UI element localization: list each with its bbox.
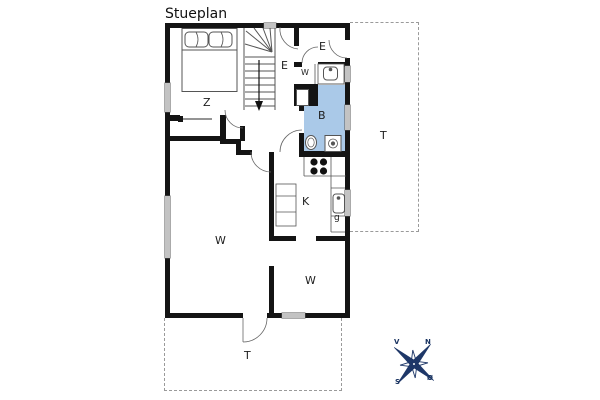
- toilet: [306, 136, 317, 150]
- room-label-kitchen: K: [302, 196, 309, 207]
- plan-linework: [0, 0, 600, 400]
- bed: [182, 29, 237, 92]
- door-arc-bathroom: [280, 130, 302, 152]
- shower: [325, 136, 341, 152]
- room-label-toilet: W: [301, 69, 309, 77]
- room-label-bedroom: Z: [203, 97, 211, 108]
- compass-west: V: [394, 338, 399, 346]
- door-arc-terrace: [243, 318, 267, 342]
- room-label-bathroom: B: [318, 110, 326, 121]
- door-arc-front-door: [329, 40, 347, 58]
- room-label-cupboard: g: [334, 214, 340, 223]
- room-label-room2: W: [305, 275, 316, 286]
- room-label-hall: E: [281, 60, 288, 71]
- toilet-sink: [315, 64, 344, 84]
- room-label-terrace-right: T: [380, 130, 387, 141]
- stove: [310, 158, 327, 174]
- compass-north: N: [425, 338, 431, 346]
- compass-rose: [384, 334, 444, 394]
- kitchen-sink: [333, 194, 345, 213]
- kitchen-bench: [276, 184, 296, 226]
- door-arc-toilet: [302, 47, 318, 63]
- pillow: [185, 32, 208, 47]
- room-label-living: W: [215, 235, 226, 246]
- sliding-door: [178, 116, 212, 122]
- room-label-entrance: E: [319, 41, 326, 52]
- door-arc-bedroom: [225, 110, 243, 128]
- room-label-terrace-bottom: T: [244, 350, 251, 361]
- door-arc-hall-entrance: [280, 27, 298, 49]
- compass-south: S: [395, 378, 400, 386]
- pillow: [209, 32, 232, 47]
- door-arc-living: [251, 152, 271, 172]
- floor-plan-canvas: Stueplan: [0, 0, 600, 400]
- compass-east: Ø: [427, 374, 433, 382]
